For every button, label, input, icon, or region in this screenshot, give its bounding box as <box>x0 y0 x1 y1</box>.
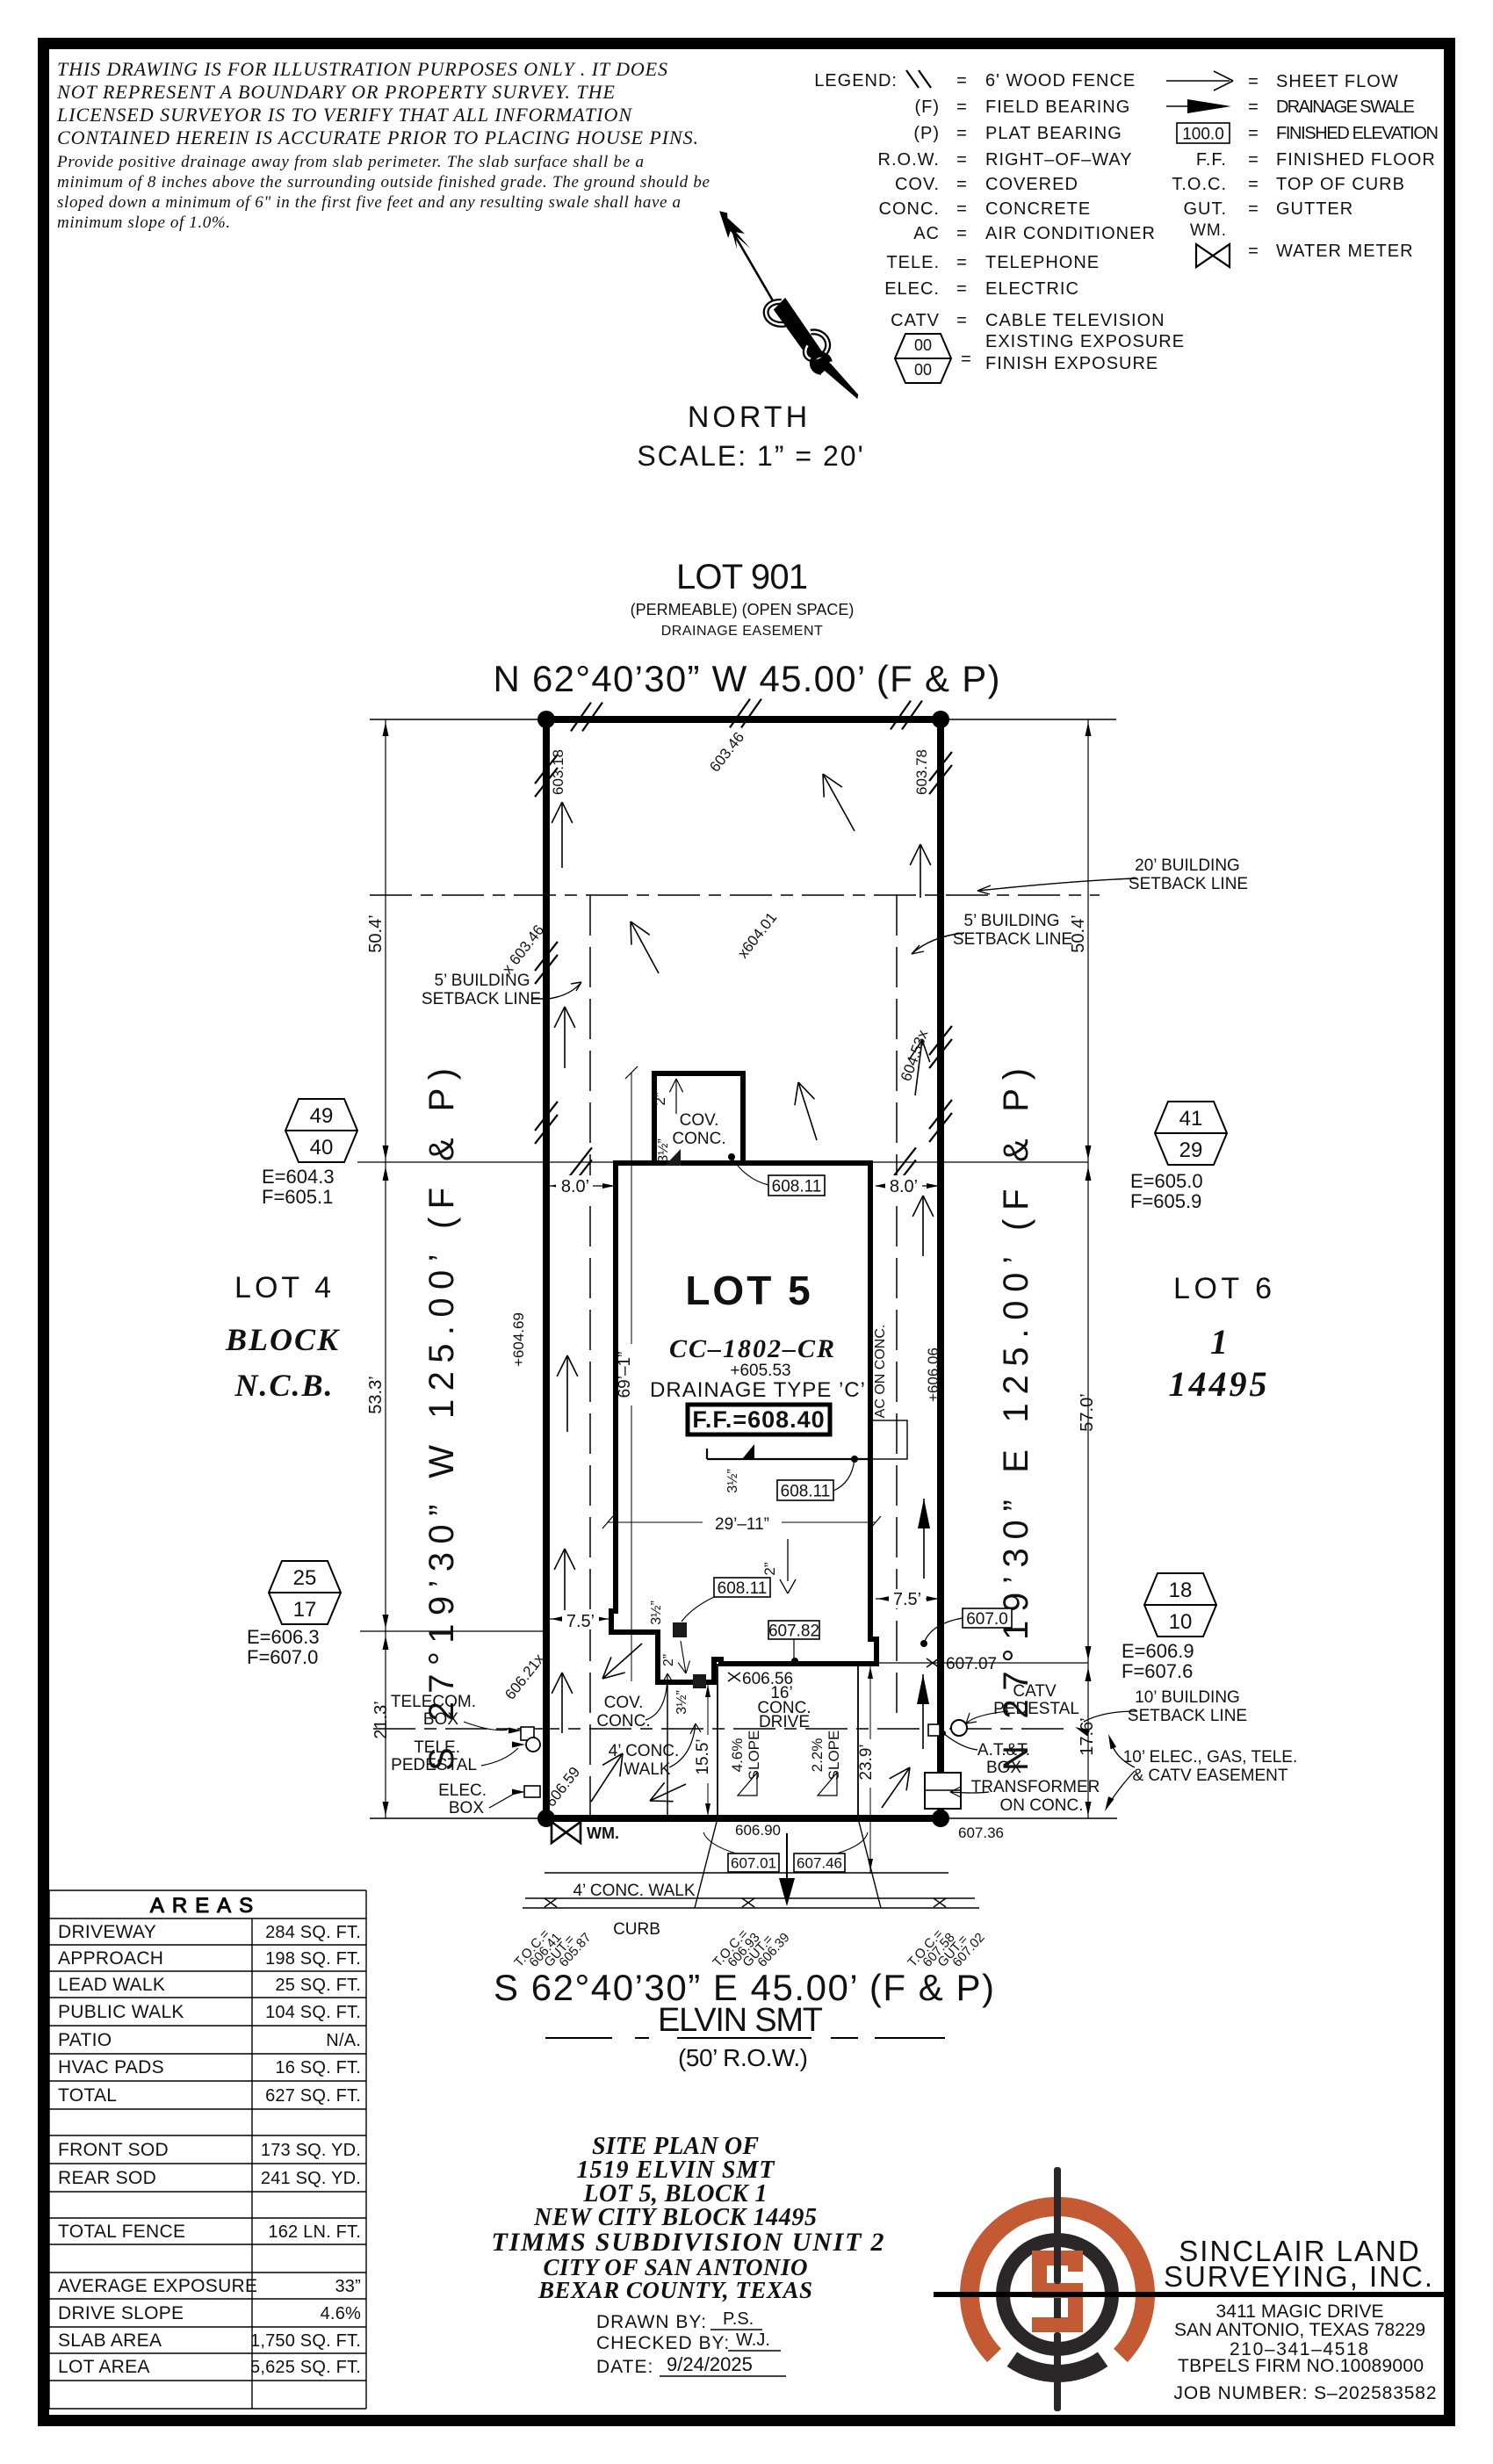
svg-text:4’ CONC.: 4’ CONC. <box>609 1742 680 1760</box>
svg-text:PUBLIC WALK: PUBLIC WALK <box>58 2002 184 2022</box>
svg-text:Provide positive drainage away: Provide positive drainage away from slab… <box>56 153 644 171</box>
svg-text:AIR CONDITIONER: AIR CONDITIONER <box>985 224 1156 243</box>
svg-text:ELVIN SMT: ELVIN SMT <box>658 2002 826 2039</box>
svg-text:=: = <box>956 224 967 243</box>
svg-text:SLOPE: SLOPE <box>746 1731 762 1781</box>
svg-text:SHEET FLOW: SHEET FLOW <box>1276 72 1399 91</box>
svg-text:=: = <box>956 311 967 330</box>
svg-text:EXISTING EXPOSURE: EXISTING EXPOSURE <box>985 332 1185 351</box>
svg-text:T.O.C.: T.O.C. <box>1172 175 1227 194</box>
svg-text:CONTAINED HEREIN IS ACCURATE P: CONTAINED HEREIN IS ACCURATE PRIOR TO PL… <box>57 126 698 148</box>
svg-text:00: 00 <box>914 361 932 379</box>
svg-text:SETBACK LINE: SETBACK LINE <box>953 930 1072 949</box>
svg-text:FRONT SOD: FRONT SOD <box>58 2140 169 2160</box>
svg-text:608.11: 608.11 <box>772 1177 822 1196</box>
svg-text:69’–1”: 69’–1” <box>616 1352 634 1398</box>
svg-text:SCALE: 1” = 20': SCALE: 1” = 20' <box>637 440 864 472</box>
svg-text:607.07: 607.07 <box>946 1655 997 1673</box>
svg-text:A.T.&T.: A.T.&T. <box>977 1741 1030 1759</box>
svg-text:CURB: CURB <box>613 1920 660 1939</box>
svg-text:CHECKED BY:: CHECKED BY: <box>596 2333 730 2353</box>
svg-text:9/24/2025: 9/24/2025 <box>667 2353 753 2375</box>
svg-text:BEXAR COUNTY, TEXAS: BEXAR COUNTY, TEXAS <box>537 2277 812 2303</box>
svg-text:LEGEND:: LEGEND: <box>814 71 898 90</box>
svg-text:29: 29 <box>1179 1138 1203 1162</box>
svg-text:5,625 SQ. FT.: 5,625 SQ. FT. <box>250 2358 361 2377</box>
svg-text:CC–1802–CR: CC–1802–CR <box>669 1334 836 1363</box>
svg-text:3½”: 3½” <box>656 1138 671 1163</box>
svg-text:AREAS: AREAS <box>150 1894 261 1918</box>
svg-text:S 27°19’30” W 125.00’ (F & P): S 27°19’30” W 125.00’ (F & P) <box>422 1068 461 1771</box>
svg-text:REAR SOD: REAR SOD <box>58 2168 156 2188</box>
svg-text:3411 MAGIC DRIVE: 3411 MAGIC DRIVE <box>1216 2301 1384 2322</box>
svg-text:606.90: 606.90 <box>735 1822 781 1839</box>
svg-text:6' WOOD FENCE: 6' WOOD FENCE <box>985 71 1136 90</box>
svg-text:10’ ELEC., GAS, TELE.: 10’ ELEC., GAS, TELE. <box>1123 1748 1298 1767</box>
svg-text:TELE.: TELE. <box>414 1738 460 1757</box>
svg-text:627 SQ. FT.: 627 SQ. FT. <box>265 2086 361 2106</box>
svg-text:RIGHT–OF–WAY: RIGHT–OF–WAY <box>985 150 1133 170</box>
svg-text:WALK: WALK <box>624 1760 670 1779</box>
svg-text:284 SQ. FT.: 284 SQ. FT. <box>265 1923 361 1942</box>
svg-text:CATV: CATV <box>1013 1682 1057 1701</box>
svg-text:8.0’: 8.0’ <box>561 1177 589 1196</box>
svg-text:1: 1 <box>1210 1322 1228 1362</box>
svg-text:CONC.: CONC. <box>672 1130 725 1148</box>
svg-text:COV.: COV. <box>680 1111 719 1130</box>
svg-text:(F): (F) <box>914 98 940 117</box>
svg-text:1,750 SQ. FT.: 1,750 SQ. FT. <box>250 2331 361 2351</box>
svg-text:GUT.: GUT. <box>1183 199 1227 219</box>
svg-text:THIS DRAWING IS FOR ILLUSTRATI: THIS DRAWING IS FOR ILLUSTRATION PURPOSE… <box>57 58 667 80</box>
svg-text:DRAWN BY:: DRAWN BY: <box>596 2312 707 2332</box>
svg-text:F.F.=608.40: F.F.=608.40 <box>692 1406 825 1433</box>
svg-text:7.5’: 7.5’ <box>566 1612 595 1631</box>
svg-text:F.F.: F.F. <box>1196 150 1227 170</box>
svg-text:57.0’: 57.0’ <box>1078 1393 1097 1431</box>
svg-text:33”: 33” <box>335 2277 361 2296</box>
svg-text:WATER METER: WATER METER <box>1276 242 1414 261</box>
svg-text:10: 10 <box>1169 1610 1193 1634</box>
svg-text:15.5’: 15.5’ <box>694 1738 712 1774</box>
svg-text:LOT 6: LOT 6 <box>1173 1272 1272 1305</box>
svg-text:23.9’: 23.9’ <box>857 1744 876 1780</box>
svg-text:BOX: BOX <box>986 1759 1021 1777</box>
svg-text:DRAINAGE SWALE: DRAINAGE SWALE <box>1276 98 1415 117</box>
svg-text:=: = <box>956 98 967 117</box>
svg-text:sloped down a minimum of 6" in: sloped down a minimum of 6" in the first… <box>57 193 681 212</box>
svg-text:=: = <box>1248 72 1259 91</box>
svg-text:DRIVEWAY: DRIVEWAY <box>58 1922 156 1942</box>
svg-text:162 LN. FT.: 162 LN. FT. <box>268 2222 361 2242</box>
svg-text:LOT AREA: LOT AREA <box>58 2357 150 2377</box>
svg-text:5’ BUILDING: 5’ BUILDING <box>434 972 530 990</box>
svg-text:LOT 4: LOT 4 <box>234 1271 331 1304</box>
svg-text:50.4’: 50.4’ <box>366 914 386 952</box>
svg-text:(50’ R.O.W.): (50’ R.O.W.) <box>678 2044 808 2071</box>
svg-text:TRANSFORMER: TRANSFORMER <box>971 1778 1100 1796</box>
svg-text:minimum slope of 1.0%.: minimum slope of 1.0%. <box>57 213 230 232</box>
svg-text:+604.69: +604.69 <box>510 1312 527 1367</box>
svg-text:LOT 5: LOT 5 <box>685 1268 812 1313</box>
svg-text:TELEPHONE: TELEPHONE <box>985 253 1100 272</box>
svg-text:2.2%: 2.2% <box>809 1738 826 1773</box>
svg-text:CONC.: CONC. <box>596 1712 650 1731</box>
svg-text:=: = <box>956 124 967 143</box>
svg-text:F=607.0: F=607.0 <box>247 1646 318 1668</box>
svg-text:=: = <box>1248 124 1259 143</box>
svg-text:2”: 2” <box>652 1092 668 1105</box>
svg-text:DRAINAGE EASEMENT: DRAINAGE EASEMENT <box>661 624 824 639</box>
svg-text:3½”: 3½” <box>725 1469 740 1493</box>
svg-text:CATV: CATV <box>891 311 940 330</box>
svg-text:DRAINAGE TYPE ’C’: DRAINAGE TYPE ’C’ <box>650 1378 866 1402</box>
svg-text:HVAC PADS: HVAC PADS <box>58 2057 164 2077</box>
svg-text:20’ BUILDING: 20’ BUILDING <box>1135 856 1240 875</box>
svg-text:APPROACH: APPROACH <box>58 1948 163 1969</box>
svg-text:AC ON CONC.: AC ON CONC. <box>873 1325 888 1419</box>
svg-text:FINISHED FLOOR: FINISHED FLOOR <box>1276 150 1436 170</box>
svg-text:COV.: COV. <box>604 1694 644 1712</box>
svg-text:=: = <box>956 199 967 219</box>
svg-text:241 SQ. YD.: 241 SQ. YD. <box>261 2169 361 2188</box>
svg-text:603.78: 603.78 <box>913 749 930 795</box>
svg-text:=: = <box>961 350 971 369</box>
svg-text:E=605.0: E=605.0 <box>1130 1170 1203 1192</box>
svg-text:& CATV EASEMENT: & CATV EASEMENT <box>1132 1767 1287 1785</box>
svg-text:=: = <box>956 150 967 170</box>
svg-text:CONC.: CONC. <box>879 199 940 219</box>
svg-text:(P): (P) <box>913 124 940 143</box>
svg-text:607.01: 607.01 <box>731 1855 776 1872</box>
svg-text:607.0: 607.0 <box>966 1610 1008 1629</box>
svg-text:F=605.9: F=605.9 <box>1130 1190 1201 1212</box>
svg-text:LICENSED SURVEYOR IS TO VERIFY: LICENSED SURVEYOR IS TO VERIFY THAT ALL … <box>56 104 632 126</box>
svg-text:TELE.: TELE. <box>886 253 940 272</box>
svg-text:N.C.B.: N.C.B. <box>234 1368 334 1403</box>
svg-text:4.6%: 4.6% <box>321 2304 361 2323</box>
svg-text:ON CONC.: ON CONC. <box>1000 1796 1084 1815</box>
svg-text:COVERED: COVERED <box>985 175 1078 194</box>
svg-text:100.0: 100.0 <box>1182 125 1224 143</box>
svg-text:PLAT BEARING: PLAT BEARING <box>985 124 1122 143</box>
svg-text:F=605.1: F=605.1 <box>262 1186 333 1208</box>
svg-text:608.11: 608.11 <box>781 1482 831 1500</box>
svg-text:41: 41 <box>1179 1107 1203 1131</box>
svg-text:21.3’: 21.3’ <box>371 1701 391 1738</box>
svg-text:=: = <box>956 279 967 299</box>
svg-text:607.46: 607.46 <box>797 1855 842 1872</box>
svg-text:TELECOM.: TELECOM. <box>391 1693 476 1711</box>
svg-text:=: = <box>1248 150 1259 170</box>
svg-text:2”: 2” <box>761 1562 778 1575</box>
svg-text:49: 49 <box>310 1104 334 1128</box>
svg-text:PEDESTAL: PEDESTAL <box>391 1756 477 1774</box>
svg-text:=: = <box>956 253 967 272</box>
svg-text:=: = <box>1248 175 1259 194</box>
svg-text:FINISHED ELEVATION: FINISHED ELEVATION <box>1276 124 1439 143</box>
svg-text:53.3’: 53.3’ <box>366 1376 386 1413</box>
svg-text:CONCRETE: CONCRETE <box>985 199 1091 219</box>
svg-text:ELECTRIC: ELECTRIC <box>985 279 1079 299</box>
svg-text:4’ CONC. WALK: 4’ CONC. WALK <box>573 1882 695 1900</box>
svg-text:=: = <box>956 175 967 194</box>
svg-text:8.0’: 8.0’ <box>890 1177 918 1196</box>
svg-text:PEDESTAL: PEDESTAL <box>993 1700 1079 1718</box>
svg-text:14495: 14495 <box>1169 1364 1270 1404</box>
svg-text:FINISH EXPOSURE: FINISH EXPOSURE <box>985 354 1158 373</box>
svg-text:607.82: 607.82 <box>768 1622 819 1640</box>
svg-text:P.S.: P.S. <box>723 2309 754 2329</box>
svg-text:FIELD BEARING: FIELD BEARING <box>985 98 1130 117</box>
svg-text:E=604.3: E=604.3 <box>262 1166 335 1188</box>
svg-text:WM.: WM. <box>1190 221 1227 240</box>
svg-text:TIMMS SUBDIVISION UNIT 2: TIMMS SUBDIVISION UNIT 2 <box>492 2228 884 2257</box>
svg-text:NORTH: NORTH <box>688 401 811 434</box>
svg-text:BOX: BOX <box>423 1710 458 1729</box>
svg-text:COV.: COV. <box>895 175 940 194</box>
svg-text:198 SQ. FT.: 198 SQ. FT. <box>265 1949 361 1969</box>
svg-text:E=606.9: E=606.9 <box>1122 1640 1194 1662</box>
svg-text:TOTAL: TOTAL <box>58 2085 117 2106</box>
svg-text:SLOPE: SLOPE <box>826 1731 842 1781</box>
svg-text:+606.06: +606.06 <box>925 1348 941 1402</box>
svg-text:LOT 901: LOT 901 <box>676 558 808 596</box>
svg-text:SETBACK LINE: SETBACK LINE <box>1129 875 1248 893</box>
svg-text:SETBACK LINE: SETBACK LINE <box>1128 1707 1247 1725</box>
svg-text:7.5’: 7.5’ <box>893 1590 921 1609</box>
svg-text:LEAD WALK: LEAD WALK <box>58 1975 165 1995</box>
svg-text:2”: 2” <box>661 1654 676 1666</box>
svg-text:BLOCK: BLOCK <box>225 1322 341 1357</box>
svg-text:4.6%: 4.6% <box>729 1738 746 1773</box>
svg-text:TBPELS FIRM NO.10089000: TBPELS FIRM NO.10089000 <box>1178 2356 1424 2376</box>
svg-text:ELEC.: ELEC. <box>438 1781 487 1800</box>
svg-text:17.6’: 17.6’ <box>1078 1717 1097 1755</box>
svg-text:SURVEYING, INC.: SURVEYING, INC. <box>1164 2260 1434 2293</box>
svg-text:25: 25 <box>293 1566 317 1590</box>
svg-text:BOX: BOX <box>449 1799 484 1817</box>
svg-text:JOB NUMBER: S–202583582: JOB NUMBER: S–202583582 <box>1174 2383 1437 2403</box>
svg-text:TOP OF CURB: TOP OF CURB <box>1276 175 1405 194</box>
svg-text:5’ BUILDING: 5’ BUILDING <box>963 912 1059 930</box>
svg-text:CABLE TELEVISION: CABLE TELEVISION <box>985 311 1165 330</box>
svg-text:(PERMEABLE) (OPEN SPACE): (PERMEABLE) (OPEN SPACE) <box>631 601 855 618</box>
svg-text:PATIO: PATIO <box>58 2030 112 2050</box>
svg-text:minimum of 8 inches above the: minimum of 8 inches above the surroundin… <box>57 173 710 191</box>
svg-text:ELEC.: ELEC. <box>884 279 940 299</box>
svg-text:AC: AC <box>913 224 940 243</box>
svg-text:DRIVE SLOPE: DRIVE SLOPE <box>58 2303 184 2323</box>
svg-text:DRIVE: DRIVE <box>759 1713 810 1731</box>
svg-text:607.36: 607.36 <box>958 1825 1004 1841</box>
svg-text:608.11: 608.11 <box>718 1579 768 1598</box>
svg-text:E=606.3: E=606.3 <box>247 1626 320 1648</box>
svg-text:F=607.6: F=607.6 <box>1122 1660 1193 1682</box>
svg-text:3½”: 3½” <box>674 1690 689 1715</box>
svg-text:25 SQ. FT.: 25 SQ. FT. <box>275 1976 361 1995</box>
svg-text:AVERAGE EXPOSURE: AVERAGE EXPOSURE <box>58 2276 257 2296</box>
svg-text:=: = <box>956 71 967 90</box>
svg-text:N/A.: N/A. <box>326 2031 361 2050</box>
svg-text:W.J.: W.J. <box>736 2330 770 2350</box>
svg-text:WM.: WM. <box>587 1825 619 1842</box>
svg-text:603.18: 603.18 <box>550 749 566 795</box>
svg-text:17: 17 <box>293 1598 317 1622</box>
svg-text:16 SQ. FT.: 16 SQ. FT. <box>275 2058 361 2077</box>
svg-text:SETBACK LINE: SETBACK LINE <box>422 990 541 1008</box>
svg-text:R.O.W.: R.O.W. <box>878 150 940 170</box>
svg-text:=: = <box>1248 98 1259 117</box>
svg-text:NOT REPRESENT A BOUNDARY OR P: NOT REPRESENT A BOUNDARY OR PROPERTY SUR… <box>56 81 616 103</box>
svg-text:GUTTER: GUTTER <box>1276 199 1353 219</box>
svg-text:+605.53: +605.53 <box>730 1362 790 1380</box>
svg-text:TOTAL FENCE: TOTAL FENCE <box>58 2222 185 2242</box>
svg-text:SAN ANTONIO, TEXAS 78229: SAN ANTONIO, TEXAS 78229 <box>1174 2320 1425 2340</box>
svg-text:173 SQ. YD.: 173 SQ. YD. <box>261 2141 361 2160</box>
svg-text:29’–11”: 29’–11” <box>715 1515 769 1534</box>
svg-text:SLAB AREA: SLAB AREA <box>58 2330 162 2351</box>
svg-text:3½”: 3½” <box>649 1601 664 1625</box>
svg-text:18: 18 <box>1169 1579 1193 1602</box>
svg-text:DATE:: DATE: <box>596 2357 653 2377</box>
svg-text:10’ BUILDING: 10’ BUILDING <box>1135 1688 1240 1707</box>
svg-text:=: = <box>1248 199 1259 219</box>
svg-text:=: = <box>1248 242 1259 261</box>
svg-text:00: 00 <box>914 336 932 354</box>
svg-text:104 SQ. FT.: 104 SQ. FT. <box>265 2003 361 2022</box>
svg-text:40: 40 <box>310 1136 334 1160</box>
